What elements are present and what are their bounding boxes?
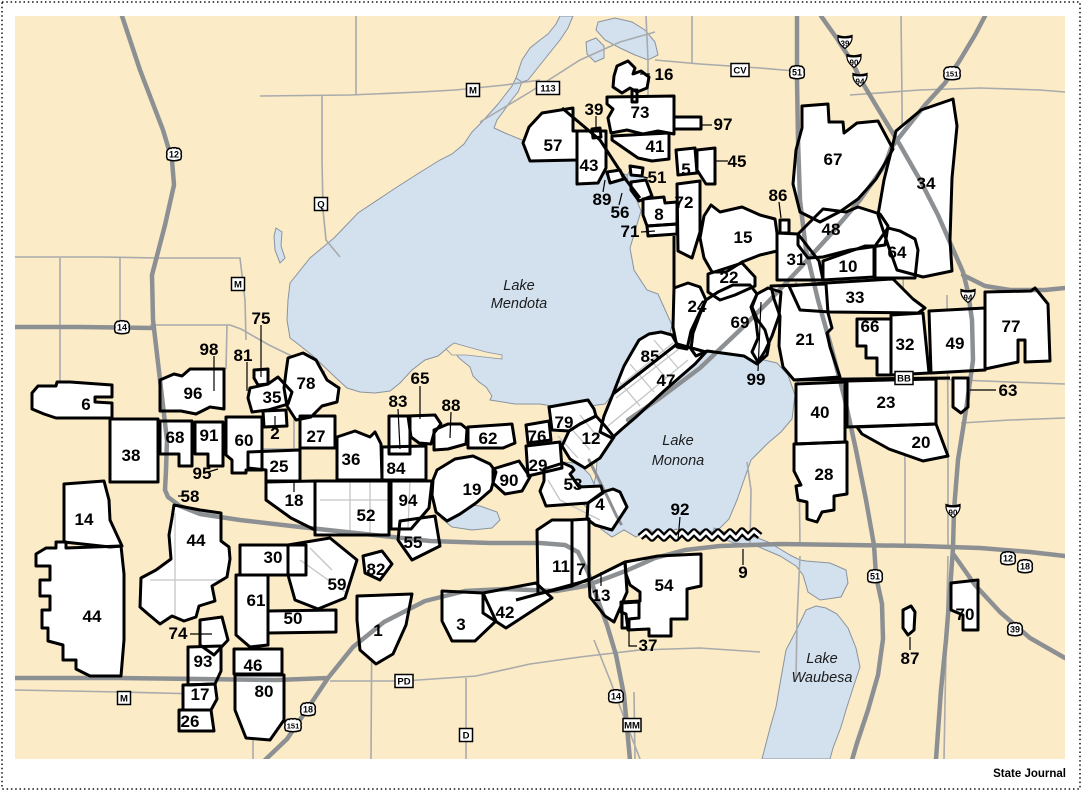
svg-text:CV: CV (733, 66, 747, 77)
svg-text:94: 94 (856, 78, 865, 87)
svg-text:56: 56 (611, 203, 630, 222)
svg-text:43: 43 (580, 156, 599, 175)
svg-text:14: 14 (75, 510, 94, 529)
svg-text:20: 20 (912, 433, 931, 452)
svg-text:14: 14 (611, 692, 621, 702)
svg-text:9: 9 (738, 563, 747, 582)
svg-text:M: M (120, 694, 128, 705)
svg-text:16: 16 (655, 65, 674, 84)
svg-text:113: 113 (540, 84, 555, 95)
svg-text:71: 71 (621, 222, 640, 241)
svg-text:Q: Q (317, 200, 324, 211)
svg-text:78: 78 (297, 374, 316, 393)
svg-text:Lake: Lake (806, 651, 837, 667)
svg-text:33: 33 (846, 288, 865, 307)
svg-text:92: 92 (671, 500, 690, 519)
svg-text:M: M (469, 86, 477, 97)
svg-text:96: 96 (184, 384, 203, 403)
svg-text:18: 18 (1020, 562, 1030, 572)
svg-text:32: 32 (896, 335, 915, 354)
svg-text:23: 23 (877, 393, 896, 412)
svg-text:18: 18 (285, 491, 304, 510)
svg-text:59: 59 (328, 575, 347, 594)
svg-text:62: 62 (479, 429, 498, 448)
svg-text:8: 8 (654, 205, 663, 224)
svg-text:D: D (463, 731, 470, 742)
svg-text:48: 48 (822, 220, 841, 239)
svg-text:90: 90 (850, 59, 859, 68)
svg-text:Lake: Lake (662, 433, 693, 449)
svg-text:87: 87 (901, 649, 920, 668)
svg-text:94: 94 (964, 294, 973, 303)
svg-text:14: 14 (117, 323, 127, 333)
svg-text:26: 26 (181, 712, 200, 731)
svg-text:30: 30 (264, 548, 283, 567)
svg-text:22: 22 (720, 268, 739, 287)
svg-text:28: 28 (815, 465, 834, 484)
svg-text:93: 93 (194, 652, 213, 671)
svg-text:44: 44 (187, 531, 206, 550)
svg-text:97: 97 (714, 115, 733, 134)
svg-text:90: 90 (500, 471, 519, 490)
svg-text:74: 74 (169, 624, 188, 643)
svg-text:94: 94 (399, 491, 418, 510)
svg-text:72: 72 (675, 193, 694, 212)
svg-text:State Journal: State Journal (993, 768, 1066, 780)
svg-text:Mendota: Mendota (491, 296, 547, 312)
svg-text:MM: MM (624, 721, 640, 732)
svg-text:40: 40 (811, 403, 830, 422)
svg-text:Waubesa: Waubesa (792, 670, 853, 686)
svg-text:91: 91 (200, 426, 219, 445)
svg-text:49: 49 (946, 334, 965, 353)
svg-text:151: 151 (946, 70, 959, 79)
svg-text:73: 73 (631, 103, 650, 122)
svg-text:68: 68 (166, 428, 185, 447)
svg-text:29: 29 (529, 456, 548, 475)
svg-text:19: 19 (463, 480, 482, 499)
svg-text:6: 6 (81, 395, 90, 414)
svg-text:63: 63 (999, 381, 1018, 400)
svg-text:7: 7 (576, 560, 585, 579)
svg-text:12: 12 (1003, 554, 1013, 564)
svg-text:80: 80 (255, 682, 274, 701)
svg-text:79: 79 (555, 413, 574, 432)
svg-text:17: 17 (191, 685, 210, 704)
svg-text:18: 18 (303, 705, 313, 715)
svg-text:83: 83 (389, 392, 408, 411)
svg-text:89: 89 (593, 190, 612, 209)
svg-text:1: 1 (373, 621, 382, 640)
svg-text:76: 76 (528, 427, 547, 446)
svg-text:21: 21 (796, 330, 815, 349)
svg-text:52: 52 (357, 506, 376, 525)
svg-text:67: 67 (824, 150, 843, 169)
svg-text:55: 55 (404, 533, 423, 552)
svg-text:82: 82 (367, 560, 386, 579)
svg-text:2: 2 (270, 424, 279, 443)
svg-text:60: 60 (235, 431, 254, 450)
svg-text:31: 31 (787, 250, 806, 269)
svg-text:57: 57 (544, 136, 563, 155)
svg-text:27: 27 (307, 427, 326, 446)
svg-text:53: 53 (564, 475, 583, 494)
svg-text:15: 15 (734, 228, 753, 247)
svg-text:39: 39 (1010, 625, 1020, 635)
svg-text:3: 3 (456, 615, 465, 634)
svg-text:46: 46 (244, 656, 263, 675)
svg-text:12: 12 (169, 150, 179, 160)
svg-text:90: 90 (949, 509, 958, 518)
svg-text:4: 4 (595, 495, 605, 514)
svg-text:85: 85 (641, 347, 660, 366)
svg-text:151: 151 (287, 722, 300, 731)
svg-text:44: 44 (83, 607, 102, 626)
svg-text:81: 81 (234, 346, 253, 365)
svg-text:65: 65 (411, 369, 430, 388)
svg-text:34: 34 (917, 174, 936, 193)
svg-text:51: 51 (648, 168, 667, 187)
svg-text:Lake: Lake (503, 278, 534, 294)
svg-text:86: 86 (769, 186, 788, 205)
svg-text:51: 51 (870, 572, 880, 582)
svg-text:12: 12 (582, 429, 601, 448)
svg-text:95: 95 (193, 464, 212, 483)
svg-text:37: 37 (639, 636, 658, 655)
svg-text:M: M (234, 280, 242, 291)
svg-text:64: 64 (888, 243, 907, 262)
svg-text:69: 69 (731, 313, 750, 332)
svg-text:38: 38 (122, 446, 141, 465)
svg-text:99: 99 (747, 370, 766, 389)
svg-text:98: 98 (200, 340, 219, 359)
svg-text:BB: BB (897, 374, 911, 385)
svg-text:70: 70 (956, 605, 975, 624)
svg-text:36: 36 (342, 450, 361, 469)
svg-text:10: 10 (839, 257, 858, 276)
svg-text:35: 35 (263, 388, 282, 407)
svg-text:11: 11 (552, 557, 570, 576)
svg-text:41: 41 (646, 137, 665, 156)
svg-text:39: 39 (585, 100, 604, 119)
svg-text:13: 13 (592, 586, 611, 605)
svg-text:47: 47 (657, 371, 676, 390)
svg-text:24: 24 (688, 297, 707, 316)
svg-text:84: 84 (387, 459, 406, 478)
svg-text:5: 5 (681, 160, 690, 179)
svg-text:61: 61 (247, 591, 266, 610)
svg-text:51: 51 (792, 68, 802, 78)
svg-text:42: 42 (496, 603, 515, 622)
svg-text:77: 77 (1002, 317, 1021, 336)
svg-text:66: 66 (861, 317, 880, 336)
svg-text:PD: PD (397, 677, 410, 688)
svg-text:25: 25 (270, 457, 289, 476)
svg-text:50: 50 (284, 609, 303, 628)
svg-text:54: 54 (655, 576, 674, 595)
svg-text:45: 45 (728, 152, 747, 171)
svg-text:Monona: Monona (652, 453, 704, 469)
svg-text:39: 39 (841, 40, 850, 49)
